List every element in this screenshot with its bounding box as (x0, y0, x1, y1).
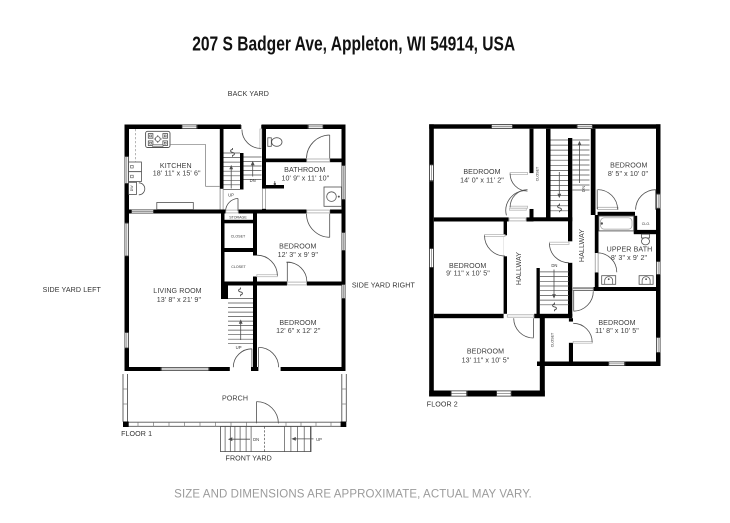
svg-text:BEDROOM: BEDROOM (279, 319, 316, 327)
svg-text:8' 3" x 9' 2": 8' 3" x 9' 2" (611, 254, 648, 262)
svg-text:9' 11" x 10' 5": 9' 11" x 10' 5" (446, 270, 490, 278)
svg-text:HALLWAY: HALLWAY (578, 229, 586, 262)
svg-text:UP: UP (228, 192, 234, 197)
svg-text:CLOSET: CLOSET (536, 166, 540, 181)
svg-text:UPPER BATH: UPPER BATH (607, 246, 653, 254)
svg-text:BEDROOM: BEDROOM (279, 242, 316, 250)
svg-text:DN: DN (253, 437, 259, 442)
svg-text:8' 5" x 10' 0": 8' 5" x 10' 0" (608, 170, 649, 178)
svg-text:18' 11" x 15' 6": 18' 11" x 15' 6" (153, 170, 201, 178)
svg-text:13' 8" x 21' 9": 13' 8" x 21' 9" (157, 296, 202, 304)
svg-text:HALLWAY: HALLWAY (515, 252, 523, 285)
svg-text:SIDE YARD LEFT: SIDE YARD LEFT (43, 286, 102, 294)
svg-text:SIZE AND DIMENSIONS ARE APPROX: SIZE AND DIMENSIONS ARE APPROXIMATE, ACT… (174, 488, 532, 500)
svg-text:11' 8" x 10' 5": 11' 8" x 10' 5" (595, 327, 639, 335)
svg-text:UP: UP (316, 437, 322, 442)
svg-text:UP: UP (236, 345, 242, 350)
svg-text:CLOSET: CLOSET (551, 332, 555, 347)
svg-text:13' 11" x 10' 5": 13' 11" x 10' 5" (462, 356, 510, 364)
svg-text:LIVING ROOM: LIVING ROOM (153, 287, 201, 295)
svg-text:14' 0" x 11' 2": 14' 0" x 11' 2" (460, 177, 504, 185)
svg-text:BEDROOM: BEDROOM (598, 319, 635, 327)
svg-text:FLOOR 1: FLOOR 1 (121, 430, 152, 438)
svg-text:DW: DW (130, 185, 134, 191)
svg-text:CLOSET: CLOSET (231, 265, 246, 269)
svg-text:BACK YARD: BACK YARD (228, 90, 269, 98)
svg-text:DN: DN (250, 178, 256, 183)
svg-text:DN: DN (551, 263, 557, 268)
svg-text:FRONT YARD: FRONT YARD (226, 454, 272, 462)
svg-text:BEDROOM: BEDROOM (463, 168, 500, 176)
svg-text:CLO.: CLO. (642, 222, 650, 226)
svg-text:12' 3" x 9' 9": 12' 3" x 9' 9" (278, 251, 319, 259)
svg-text:BEDROOM: BEDROOM (467, 348, 504, 356)
svg-text:DN: DN (581, 186, 586, 192)
svg-text:FLOOR 2: FLOOR 2 (427, 400, 458, 408)
svg-text:BATHROOM: BATHROOM (284, 166, 325, 174)
svg-text:CLOSET: CLOSET (231, 235, 246, 239)
svg-text:12' 6" x 12' 2": 12' 6" x 12' 2" (276, 327, 321, 335)
svg-text:207 S Badger Ave, Appleton, WI: 207 S Badger Ave, Appleton, WI 54914, US… (192, 33, 515, 56)
svg-text:10' 9" x 11' 10": 10' 9" x 11' 10" (281, 174, 329, 182)
svg-text:STORAGE: STORAGE (229, 215, 247, 219)
svg-text:SIDE YARD RIGHT: SIDE YARD RIGHT (352, 282, 416, 290)
svg-text:BEDROOM: BEDROOM (610, 162, 647, 170)
svg-text:PORCH: PORCH (222, 395, 248, 403)
